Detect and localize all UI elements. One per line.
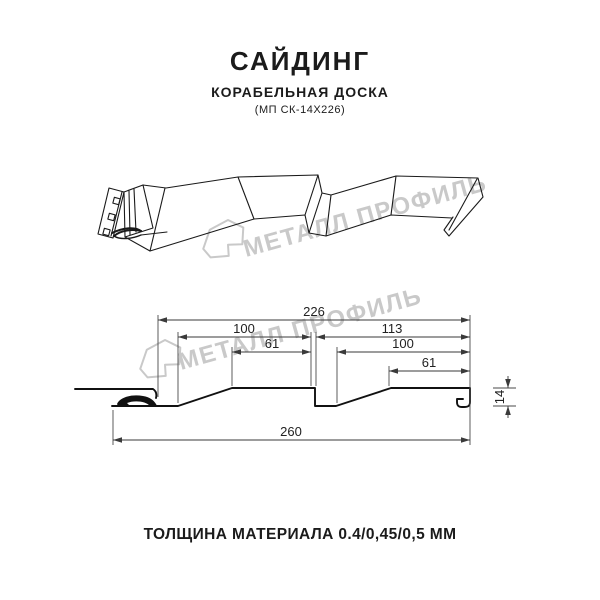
watermark-text: МЕТАЛЛ ПРОФИЛЬ [240,170,490,263]
dim-right-board-flat: 61 [389,355,470,371]
dim-value: 61 [422,355,436,370]
technical-drawing-canvas: МЕТАЛЛ ПРОФИЛЬ МЕТАЛЛ ПРОФИЛЬ [0,0,600,600]
dim-value: 226 [303,304,325,319]
lock-curl [117,395,157,406]
product-drawing-page: САЙДИНГ КОРАБЕЛЬНАЯ ДОСКА (МП СК-14Х226)… [0,0,600,600]
dim-value: 61 [265,336,279,351]
dim-value: 14 [492,390,507,404]
dim-overall-width: 260 [113,424,470,440]
lock-fold [112,185,167,239]
dim-value: 113 [382,321,403,336]
section-profile [112,388,470,407]
dim-profile-height: 14 [492,376,508,418]
dim-right-board-inner: 100 [337,336,470,352]
watermark-upper: МЕТАЛЛ ПРОФИЛЬ [198,170,490,263]
dim-value: 100 [233,321,255,336]
dim-value: 260 [280,424,302,439]
dim-value: 100 [392,336,414,351]
thickness-note: ТОЛЩИНА МАТЕРИАЛА 0.4/0,45/0,5 ММ [0,526,600,544]
